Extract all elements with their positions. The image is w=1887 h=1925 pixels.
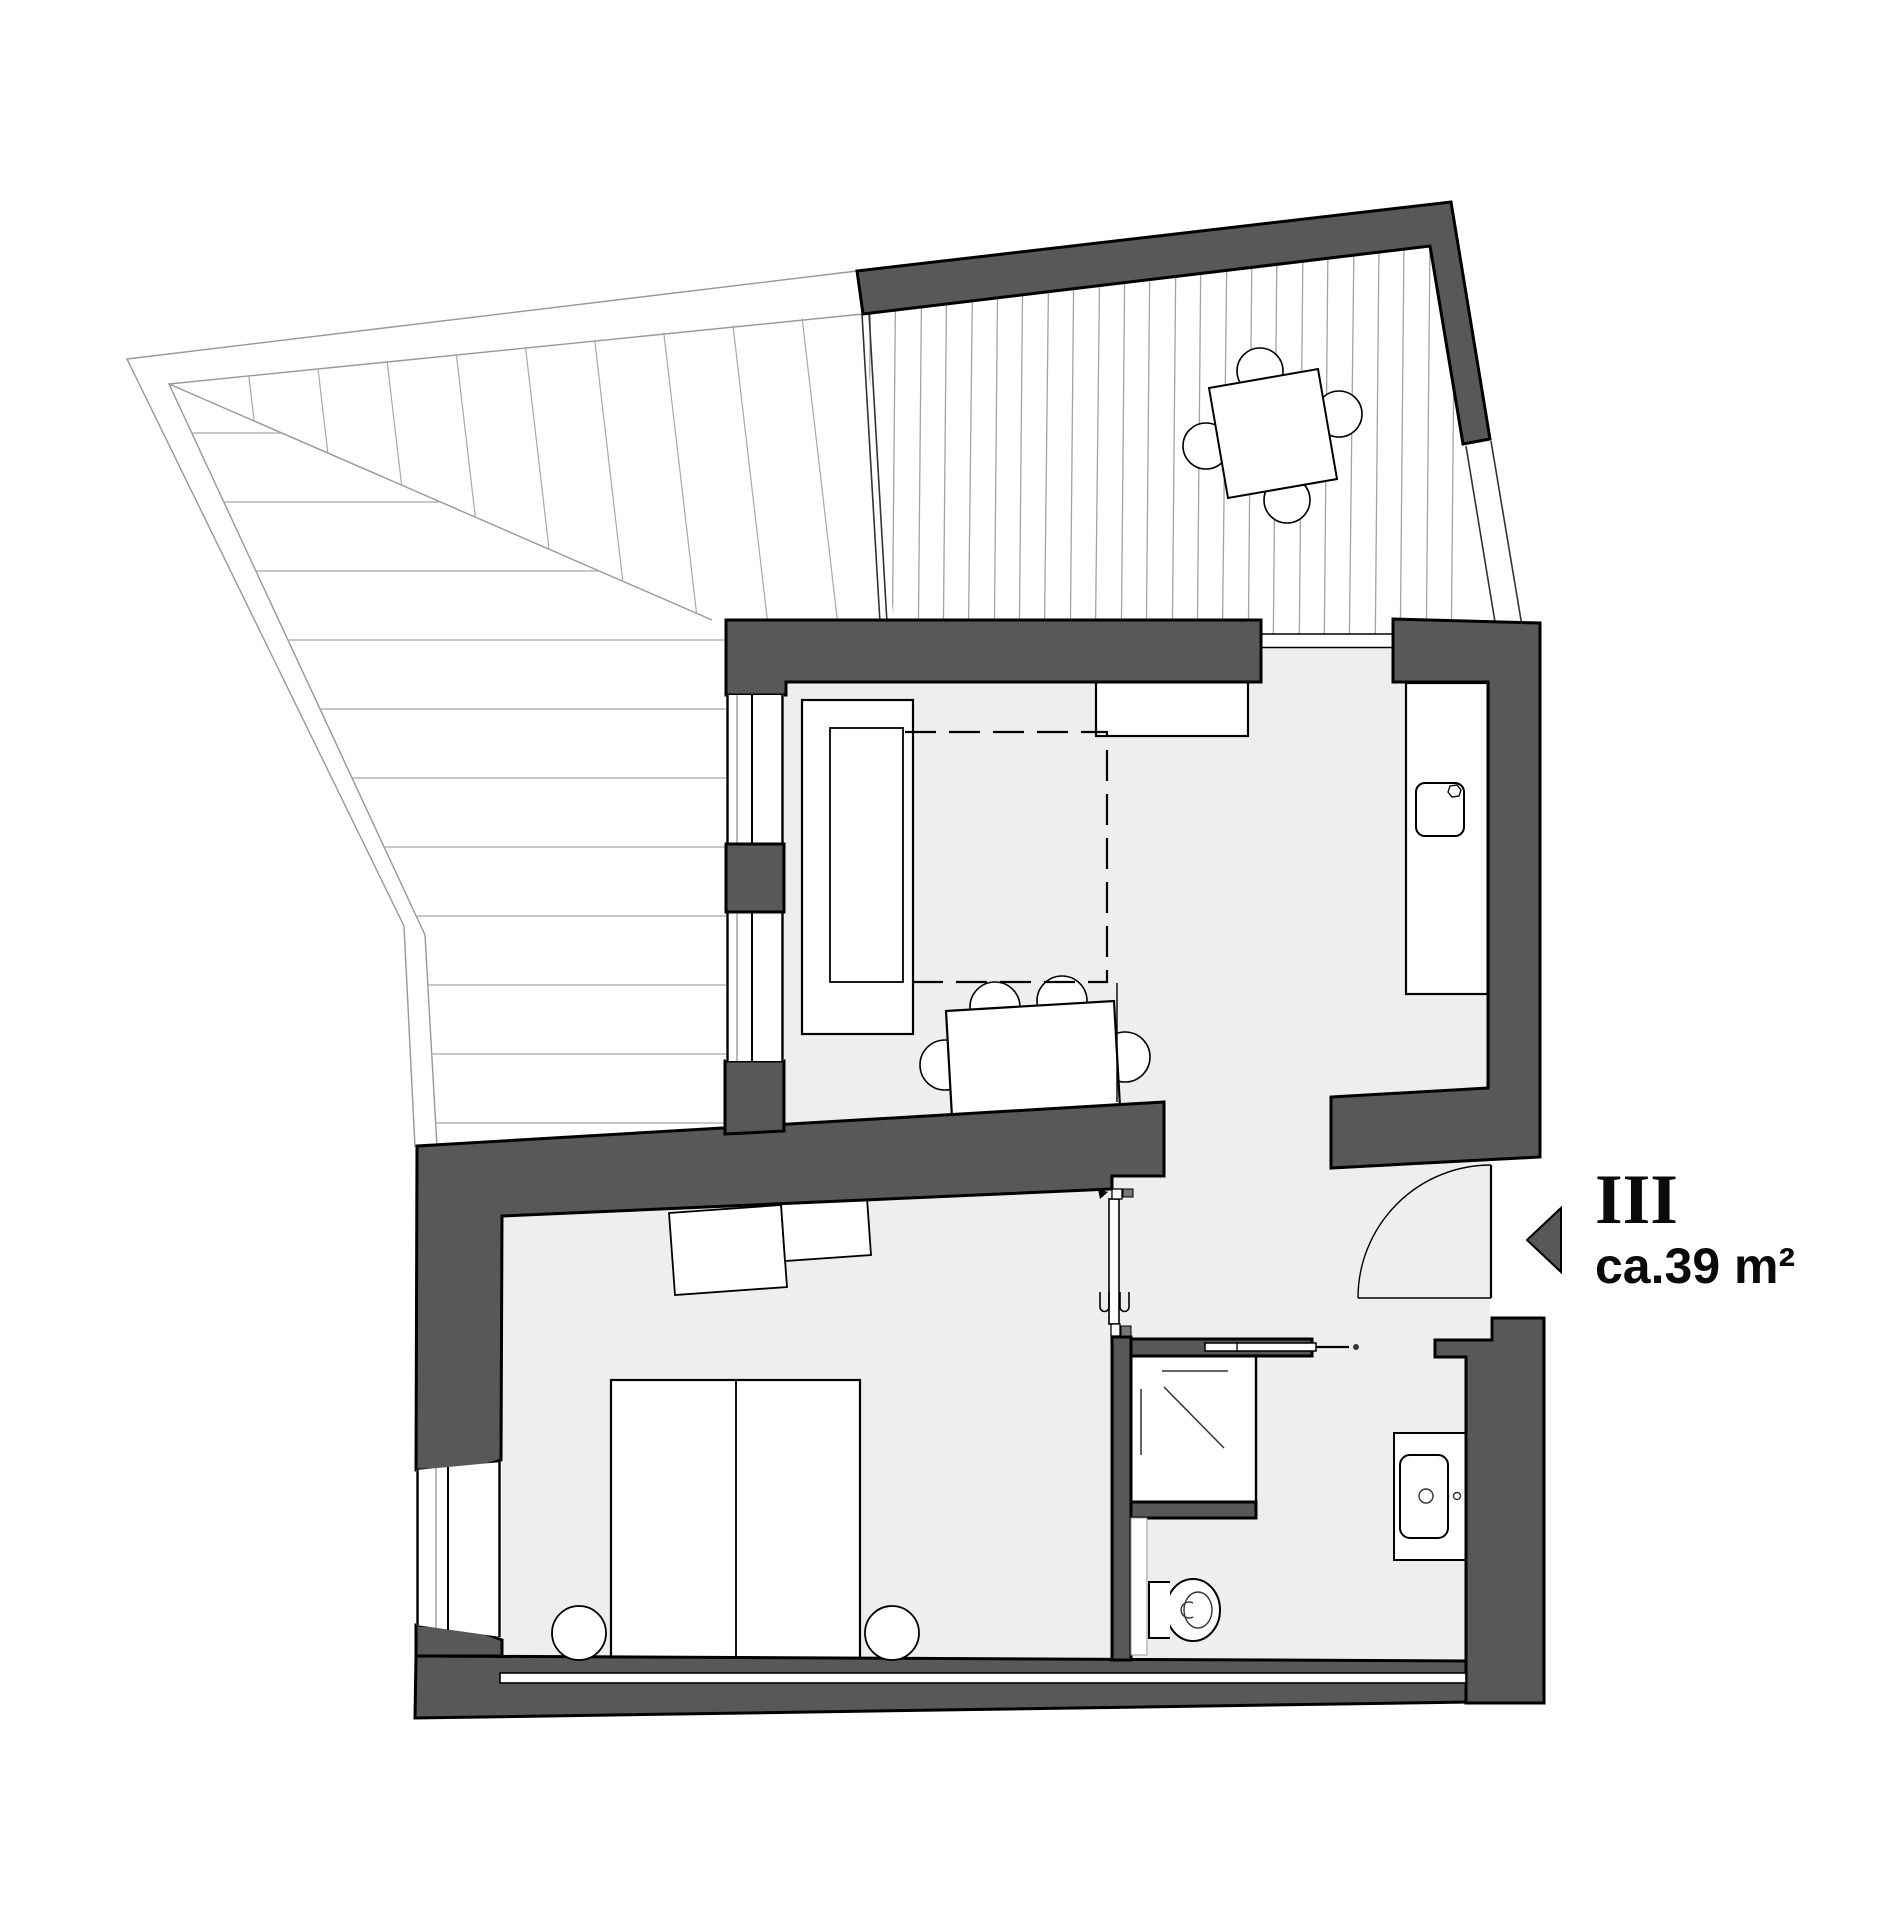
svg-text:III: III bbox=[1595, 1161, 1678, 1239]
svg-text:ca.39 m²: ca.39 m² bbox=[1595, 1238, 1795, 1294]
